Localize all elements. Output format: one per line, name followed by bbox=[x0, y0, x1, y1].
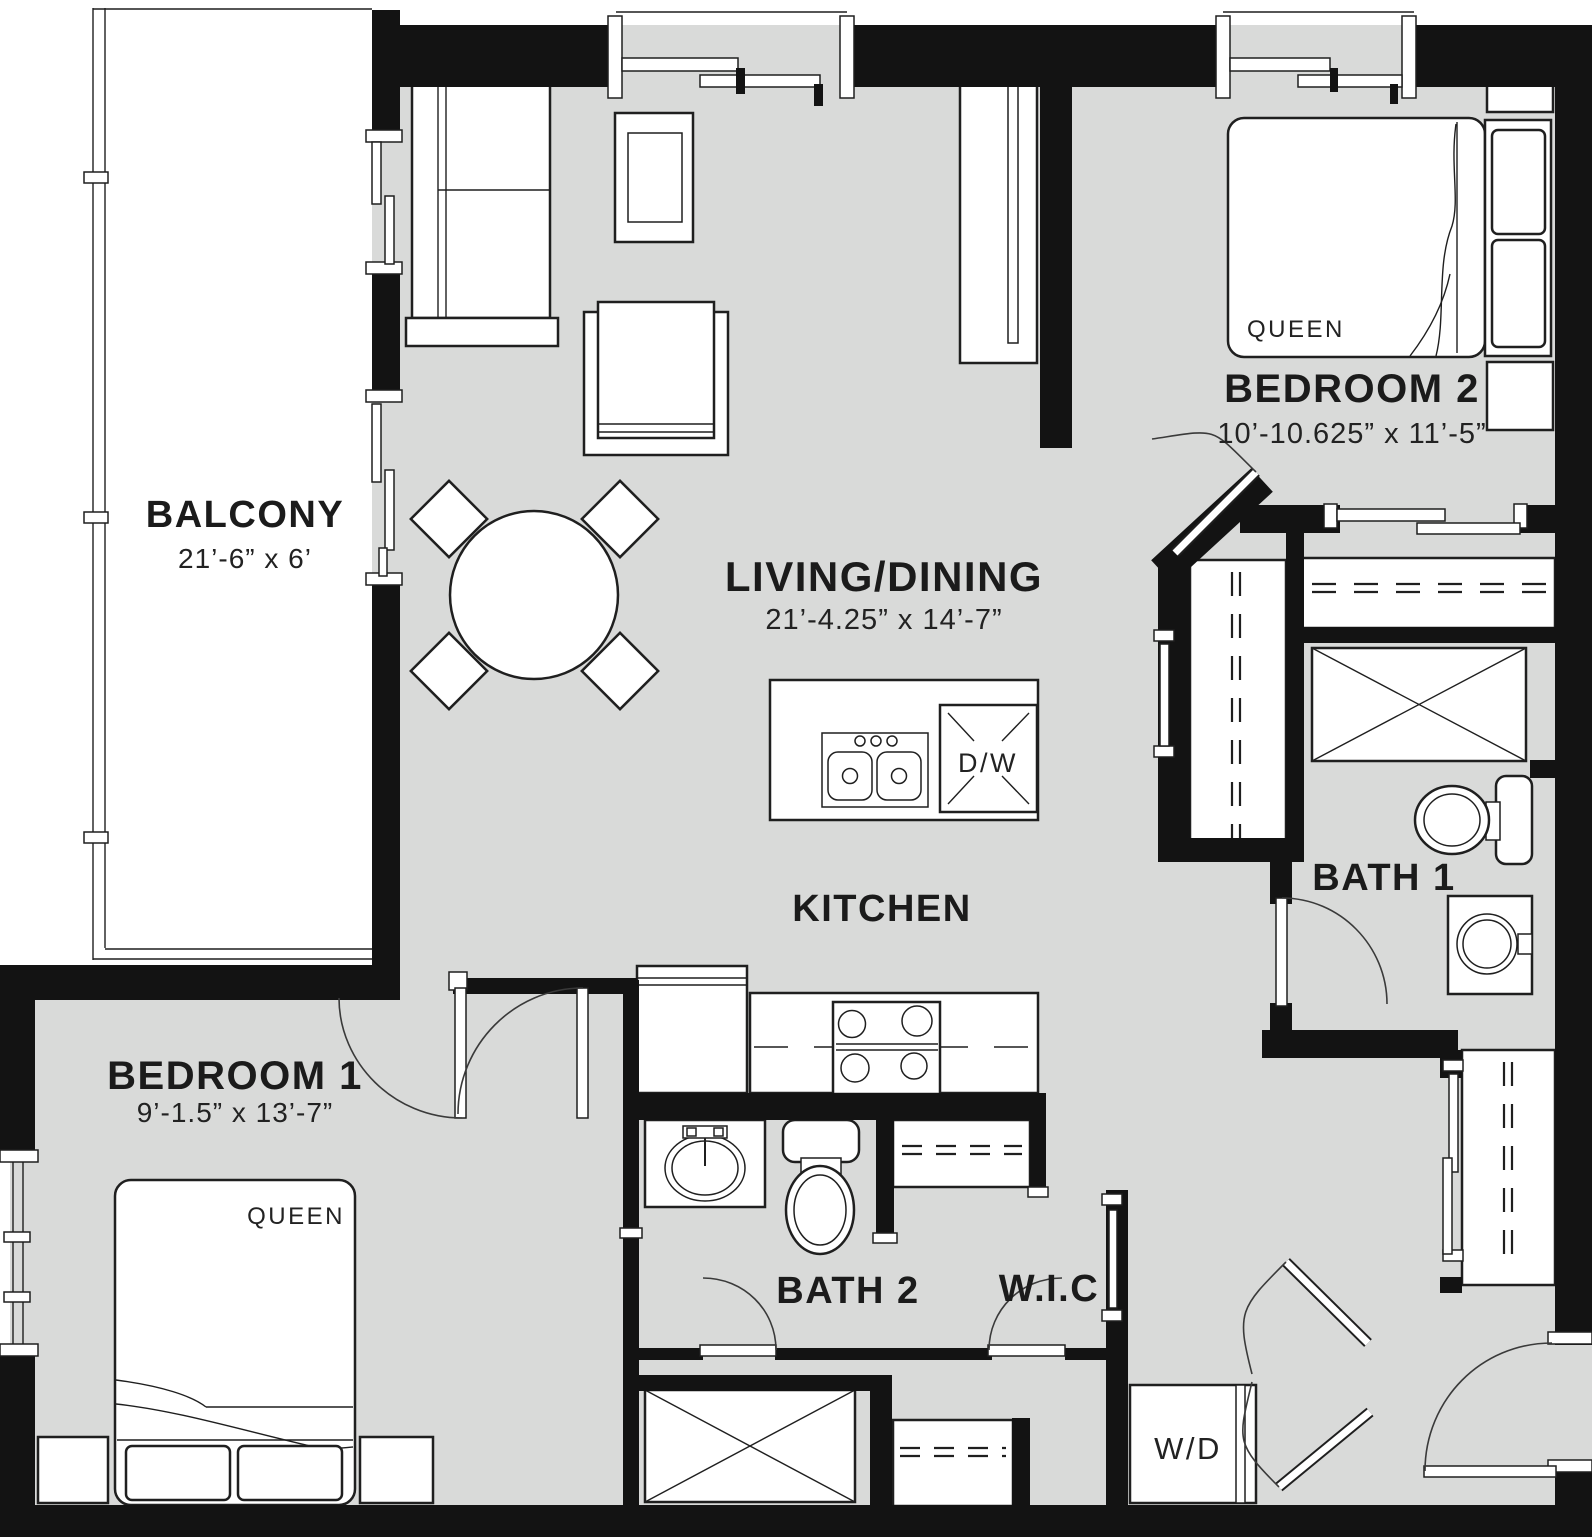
bed-1-pillow bbox=[126, 1446, 230, 1500]
bedroom2-label: BEDROOM 2 bbox=[1224, 367, 1480, 411]
wall-balcony bbox=[372, 272, 400, 400]
vanity-2-faucet-handle bbox=[687, 1128, 696, 1136]
wall-rod-stub bbox=[1012, 1418, 1030, 1508]
toilet-2-tank bbox=[783, 1120, 859, 1162]
bath1-door-leaf bbox=[1276, 898, 1287, 1006]
living-dining-dims: 21’-4.25” x 14’-7” bbox=[765, 604, 1002, 636]
tv-console-slot bbox=[1008, 68, 1018, 343]
faucet-hole bbox=[855, 736, 865, 746]
living-slider-nub bbox=[736, 68, 745, 94]
balcony-rail-post bbox=[84, 172, 108, 183]
wall-bedroom2-bottom bbox=[1520, 505, 1592, 533]
wic-slider-cap bbox=[1102, 1310, 1122, 1321]
bedroom1-dims: 9’-1.5” x 13’-7” bbox=[137, 1097, 334, 1128]
bed-2-nightstand bbox=[1487, 362, 1553, 430]
wic-slider-panel bbox=[1109, 1210, 1117, 1308]
wic-label: W.I.C bbox=[999, 1268, 1099, 1310]
pantry-slider-cap bbox=[1154, 630, 1174, 641]
balcony-door-panel bbox=[372, 404, 381, 482]
living-slider-panel bbox=[700, 75, 820, 87]
bedroom2-window-panel bbox=[1230, 58, 1330, 71]
bed-2-pillow bbox=[1492, 240, 1545, 347]
living-slider-nub bbox=[814, 84, 823, 106]
bedroom2-window-nub bbox=[1330, 68, 1338, 92]
wall-top bbox=[845, 25, 1225, 87]
pantry-slider-panel bbox=[1160, 644, 1169, 746]
linen-bypass-panel bbox=[1417, 523, 1520, 534]
bed1-queen-label: QUEEN bbox=[247, 1203, 345, 1230]
wall-art-inner bbox=[628, 133, 682, 222]
balcony-railing bbox=[84, 8, 372, 960]
toilet-2-bowl-inner bbox=[794, 1175, 846, 1245]
wall-corridor bbox=[623, 980, 639, 1510]
coffee-table-tray bbox=[598, 302, 714, 438]
wall-linen-bottom bbox=[1296, 627, 1592, 643]
entry-door-leaf bbox=[1424, 1466, 1556, 1477]
wall-right bbox=[1555, 87, 1592, 1345]
linen-bypass-cap bbox=[1324, 504, 1337, 528]
vanity-1-sink-inner bbox=[1463, 920, 1511, 968]
bedroom1-window-cap bbox=[0, 1150, 38, 1162]
wall-cap bbox=[873, 1233, 897, 1243]
wic-door-leaf bbox=[988, 1345, 1065, 1356]
stove-burner bbox=[902, 1006, 932, 1036]
faucet-hole bbox=[871, 736, 881, 746]
living-slider-cap bbox=[840, 16, 854, 98]
tv-console bbox=[960, 45, 1037, 363]
stove-burner bbox=[841, 1054, 869, 1082]
wall-cap bbox=[620, 1228, 642, 1238]
wall-tub-stub bbox=[1530, 760, 1570, 778]
pantry-slider-cap bbox=[1154, 746, 1174, 757]
balcony-label: BALCONY bbox=[146, 494, 344, 536]
wall-bath1-top bbox=[1158, 838, 1304, 862]
bedroom2-window-panel bbox=[1298, 75, 1402, 87]
stove-burner bbox=[901, 1053, 927, 1079]
balcony-door-panel bbox=[385, 470, 394, 550]
floor-plan-page: BALCONY 21’-6” x 6’ LIVING/DINING 21’-4.… bbox=[0, 0, 1592, 1537]
bedroom1-window-mullion bbox=[4, 1232, 30, 1242]
balcony-dims: 21’-6” x 6’ bbox=[178, 543, 312, 574]
dining-table bbox=[450, 511, 618, 679]
wall-bath2-wic-divider bbox=[876, 1120, 894, 1235]
balcony-door-cap bbox=[366, 130, 402, 142]
bedroom2-window-cap bbox=[1402, 16, 1416, 98]
wall-bedroom1-top bbox=[453, 978, 637, 994]
wall-bottom bbox=[0, 1505, 1592, 1537]
toilet-1-bowl-inner bbox=[1424, 794, 1480, 846]
bed-1-nightstand bbox=[360, 1437, 433, 1503]
wall-wic-right bbox=[1030, 1093, 1046, 1189]
stove-burner bbox=[839, 1011, 866, 1038]
living-slider-cap bbox=[608, 16, 622, 98]
balcony-door-panel bbox=[385, 196, 394, 264]
floor-plan: BALCONY 21’-6” x 6’ LIVING/DINING 21’-4.… bbox=[0, 0, 1592, 1537]
bedroom1-label: BEDROOM 1 bbox=[107, 1054, 363, 1098]
bedroom1-door-leaf bbox=[455, 988, 466, 1118]
wall-balcony bbox=[372, 583, 400, 1000]
wall-storage-top bbox=[628, 1375, 872, 1391]
wall-bath2-south bbox=[628, 1348, 703, 1360]
coat-bypass-panel bbox=[1443, 1158, 1452, 1254]
entry-door-jamb bbox=[1548, 1332, 1592, 1344]
vanity-2-faucet-handle bbox=[714, 1128, 723, 1136]
living-dining-label: LIVING/DINING bbox=[725, 553, 1043, 600]
linen-closet bbox=[1302, 558, 1555, 628]
balcony-door-cap bbox=[366, 390, 402, 402]
vanity-1-faucet bbox=[1518, 934, 1532, 954]
balcony-rail-post bbox=[84, 512, 108, 523]
faucet-hole bbox=[887, 736, 897, 746]
wall-pantry-right bbox=[1286, 533, 1304, 853]
washer-dryer-panel bbox=[1236, 1385, 1245, 1503]
wall-bedroom2-divider bbox=[1040, 25, 1072, 448]
kitchen-label: KITCHEN bbox=[792, 888, 971, 930]
balcony-door-panel bbox=[379, 548, 387, 576]
coat-bypass-cap bbox=[1443, 1060, 1463, 1071]
bedroom1-window-mullion bbox=[4, 1292, 30, 1302]
bedroom2-dims: 10’-10.625” x 11’-5” bbox=[1217, 418, 1486, 450]
bath2-label: BATH 2 bbox=[776, 1270, 919, 1312]
wall-balcony bbox=[372, 10, 400, 140]
wall-top bbox=[1412, 25, 1592, 87]
toilet-1-tank bbox=[1496, 776, 1532, 864]
balcony-door-panel bbox=[372, 142, 381, 204]
dishwasher-label: D/W bbox=[958, 748, 1018, 778]
wall-wic-south bbox=[1065, 1348, 1108, 1360]
bedroom2-window-cap bbox=[1216, 16, 1230, 98]
coat-closet bbox=[1462, 1050, 1555, 1285]
wall-kitchen-south bbox=[625, 1093, 1045, 1120]
sofa-armrest bbox=[406, 318, 558, 346]
bath2-door-leaf bbox=[700, 1345, 776, 1356]
bed2-queen-label: QUEEN bbox=[1247, 316, 1345, 343]
vestibule-door-leaf bbox=[577, 988, 588, 1118]
bed-2-pillow bbox=[1492, 130, 1545, 234]
wall-top bbox=[372, 25, 618, 87]
bath1-label: BATH 1 bbox=[1312, 857, 1455, 899]
bedroom1-window-cap bbox=[0, 1344, 38, 1356]
wall-storage-right bbox=[870, 1375, 892, 1508]
wall-bath2-south bbox=[775, 1348, 992, 1360]
wall-bedroom1-top bbox=[0, 965, 372, 1000]
living-slider-panel bbox=[622, 58, 738, 71]
pantry-closet bbox=[1190, 560, 1286, 850]
wall-bath1-bottom bbox=[1262, 1030, 1458, 1058]
wall-cap bbox=[1028, 1187, 1048, 1197]
balcony-door-cap bbox=[366, 262, 402, 274]
wall-bedroom1-left bbox=[0, 1350, 35, 1510]
wic-rod-section bbox=[893, 1420, 1013, 1506]
linen-bypass-panel bbox=[1337, 509, 1445, 521]
wall-coat-closet-stub bbox=[1440, 1277, 1462, 1293]
balcony-rail-post bbox=[84, 832, 108, 843]
bed-1-pillow bbox=[238, 1446, 342, 1500]
sink-drain bbox=[892, 769, 907, 784]
sink-drain bbox=[843, 769, 858, 784]
washer-dryer-label: W/D bbox=[1154, 1431, 1222, 1466]
bedroom2-window-nub bbox=[1390, 84, 1398, 104]
bed-1-nightstand bbox=[38, 1437, 108, 1503]
wic-slider-cap bbox=[1102, 1194, 1122, 1205]
